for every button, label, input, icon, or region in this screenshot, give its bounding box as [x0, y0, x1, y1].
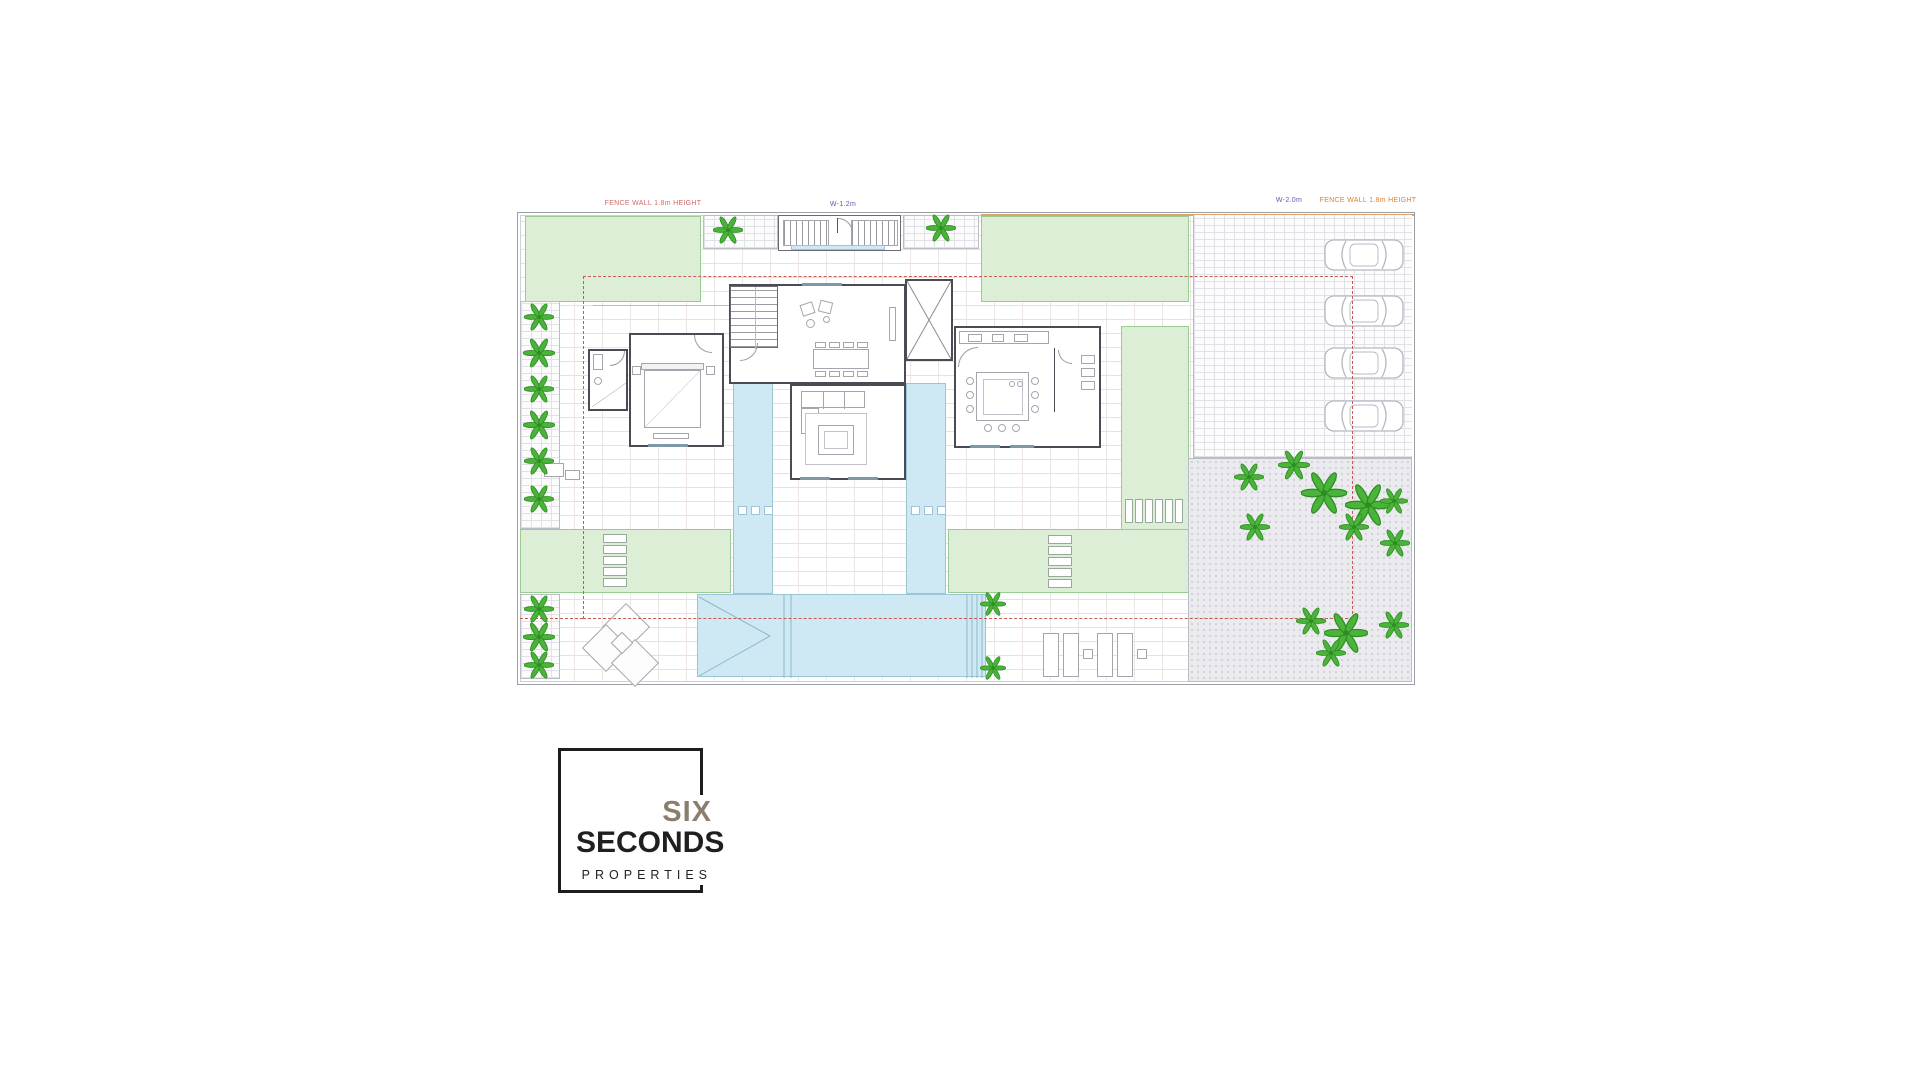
palm-tree-icon	[523, 621, 555, 653]
palm-tree-icon	[980, 655, 1006, 681]
palm-tree-icon	[1316, 638, 1346, 668]
sun-lounger	[1097, 633, 1113, 677]
entry-gate-width-label: W-1.2m	[813, 201, 873, 208]
palm-tree-icon	[1240, 512, 1270, 542]
fence-label-left: FENCE WALL 1.8m HEIGHT	[558, 200, 748, 207]
sun-lounger	[1043, 633, 1059, 677]
palm-tree-icon	[926, 213, 956, 243]
logo: SIX SECONDS PROPERTIES	[570, 795, 712, 885]
logo-six: SIX	[576, 798, 712, 827]
entrance-structure	[778, 215, 901, 251]
entrance-stairs-left	[783, 220, 829, 246]
palm-tree-icon	[1296, 606, 1326, 636]
palm-tree-icon	[713, 215, 743, 245]
palm-tree-icon	[523, 409, 555, 441]
entrance-stairs-right	[851, 220, 898, 246]
palm-tree-icon	[1234, 462, 1264, 492]
sun-lounger	[1117, 633, 1133, 677]
car-icon	[1323, 238, 1405, 272]
palm-tree-icon	[1380, 487, 1408, 515]
fence-label-right: FENCE WALL 1.8m HEIGHT	[1308, 197, 1428, 204]
palm-tree-icon	[1301, 470, 1347, 516]
palm-tree-icon	[524, 302, 554, 332]
palm-tree-icon	[524, 446, 554, 476]
palm-tree-icon	[980, 591, 1006, 617]
side-table	[1137, 649, 1147, 659]
palm-tree-icon	[524, 650, 554, 680]
palm-tree-icon	[524, 594, 554, 624]
palm-tree-icon	[523, 337, 555, 369]
side-table	[1083, 649, 1093, 659]
setback-line	[583, 276, 1353, 619]
page: FENCE WALL 1.8m HEIGHT W-1.2m W-2.0m FEN…	[0, 0, 1920, 1080]
palm-tree-icon	[1379, 610, 1409, 640]
palm-tree-icon	[1339, 512, 1369, 542]
palm-tree-icon	[524, 484, 554, 514]
sun-lounger	[1063, 633, 1079, 677]
logo-seconds: SECONDS	[576, 827, 712, 859]
palm-tree-icon	[1380, 528, 1410, 558]
terrace-box	[565, 470, 580, 480]
palm-tree-icon	[524, 374, 554, 404]
site-plan: FENCE WALL 1.8m HEIGHT W-1.2m W-2.0m FEN…	[517, 212, 1415, 685]
logo-properties: PROPERTIES	[576, 868, 712, 882]
entrance-water-strip	[791, 245, 885, 250]
